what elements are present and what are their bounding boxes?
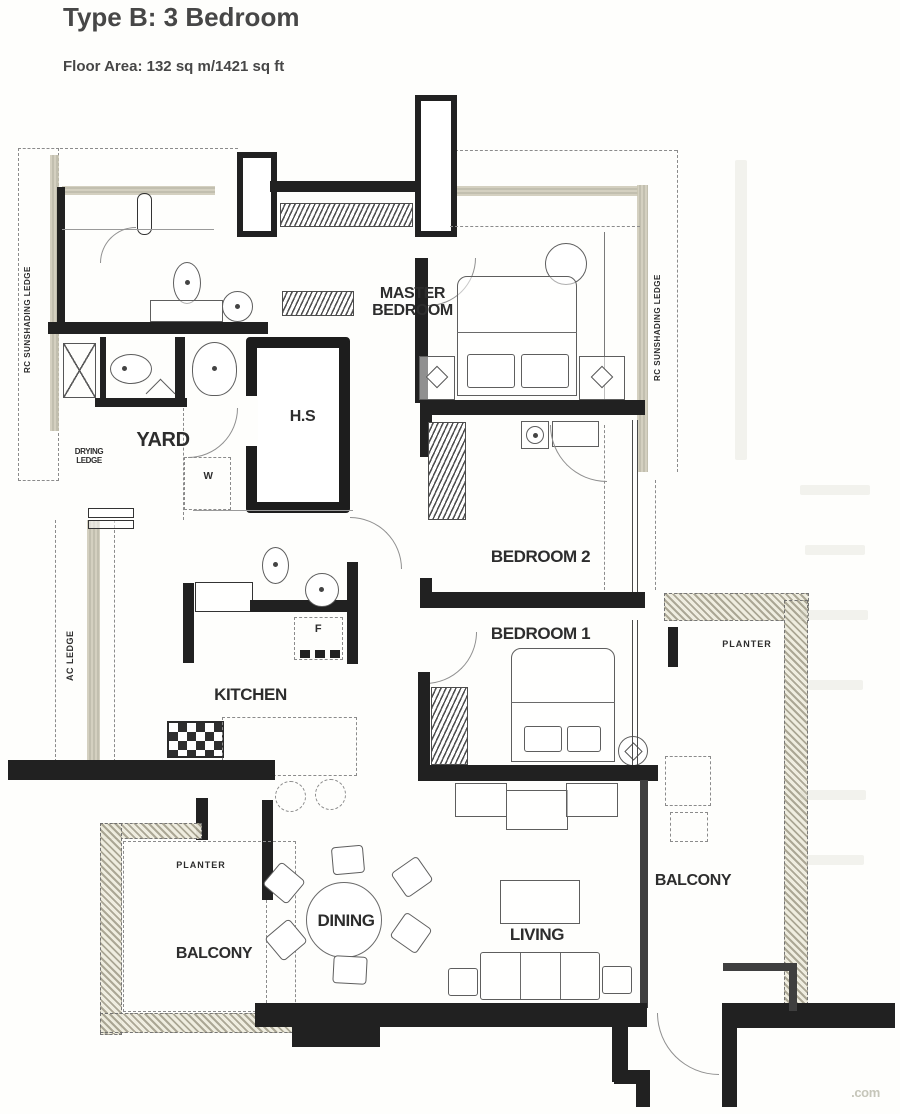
master-bed-line — [457, 332, 577, 333]
sofa-seam-2 — [560, 953, 561, 999]
dining-chair-s — [332, 955, 367, 985]
toilet-wc — [110, 354, 152, 384]
watermark-artifact — [800, 790, 866, 800]
basin-dot — [235, 304, 240, 309]
wardrobe-hatch-top — [280, 203, 413, 227]
dining-chair-n — [331, 845, 365, 876]
bedroom1-pillow-left — [524, 726, 562, 752]
shower-stall — [63, 343, 96, 398]
sunshading-band-master-top — [452, 186, 638, 196]
kitchen-sink-2 — [315, 779, 346, 810]
label-planter-right: PLANTER — [718, 640, 776, 650]
master-top-dashed — [450, 226, 640, 227]
wall-bath2-counter — [250, 600, 356, 612]
fridge-tick-3 — [330, 650, 340, 658]
side-table-left — [448, 968, 478, 996]
ac-ledge-dashed-right — [114, 520, 115, 772]
bath2-door-arc — [350, 517, 402, 569]
bedroom1-door-arc — [425, 632, 477, 684]
pedestal-basin-dot — [212, 366, 217, 371]
ac-ledge-dashed-left — [55, 520, 56, 772]
yard-door-arc — [188, 408, 238, 458]
master-bath-door-arc — [100, 227, 136, 263]
sofa-seam-1 — [520, 953, 521, 999]
tv-unit-left — [455, 783, 507, 817]
label-dining: DINING — [310, 912, 382, 930]
rc-ledge-right-boundary — [677, 150, 678, 472]
balcony-right-bracket — [668, 627, 678, 667]
dining-chair-se — [389, 912, 432, 955]
watermark-artifact — [808, 680, 863, 690]
entrance-door-arc — [657, 1013, 719, 1075]
wall-living-south — [255, 1003, 647, 1027]
watermark-text: .com — [838, 1086, 893, 1100]
label-balcony-left: BALCONY — [168, 945, 260, 962]
label-drying-ledge: DRYING LEDGE — [66, 448, 112, 465]
label-washer: W — [198, 472, 218, 483]
wall-b2b1 — [420, 592, 645, 608]
bedroom2-bay-dashed — [604, 425, 605, 590]
wall-wc-bottom — [95, 398, 187, 407]
wall-wc-right — [175, 337, 185, 401]
bedroom1-bed-line — [511, 702, 615, 703]
vanity-master-bath — [150, 300, 223, 322]
master-pillow-left — [467, 354, 515, 388]
wall-kitchen-south — [8, 760, 275, 780]
label-bedroom1: BEDROOM 1 — [483, 625, 598, 643]
label-rc-sunshading-left: RC SUNSHADING LEDGE — [24, 240, 33, 400]
balcony-rail-step-h — [723, 963, 797, 971]
structural-beam — [270, 181, 420, 192]
ac-ledge-band — [87, 520, 100, 770]
planter-right-side-band — [784, 600, 808, 1005]
label-master-bedroom: MASTER BEDROOM — [365, 285, 460, 320]
label-kitchen: KITCHEN — [208, 686, 293, 704]
fridge-tick-2 — [315, 650, 325, 658]
balcony-rail-step-v — [789, 963, 797, 1011]
structural-column-right — [415, 95, 457, 237]
wall-bedroom1-south-cap — [418, 752, 430, 766]
sunshading-band-right — [637, 185, 648, 472]
label-bedroom2: BEDROOM 2 — [483, 548, 598, 566]
wall-bath2-left — [183, 583, 194, 663]
kitchen-sink-1 — [275, 781, 306, 812]
plan-subtitle: Floor Area: 132 sq m/1421 sq ft — [63, 58, 284, 75]
window-bedroom1 — [632, 620, 638, 765]
watermark-artifact — [735, 160, 747, 460]
planter-left-side-band — [100, 823, 122, 1035]
fridge-tick-1 — [300, 650, 310, 658]
toilet-bath2-dot — [273, 562, 278, 567]
label-balcony-right: BALCONY — [647, 872, 739, 889]
wall-bottom-right — [722, 1003, 895, 1028]
watermark-artifact — [806, 855, 864, 865]
drying-shelf-1 — [88, 508, 134, 518]
sofa — [480, 952, 600, 1000]
entrance-wall-left-foot — [636, 1082, 650, 1107]
rc-ledge-right-top-dashed — [455, 150, 677, 151]
label-fridge: F — [310, 624, 326, 636]
wardrobe-hatch-dressing — [282, 291, 354, 316]
wardrobe-hatch-bedroom1 — [431, 687, 468, 765]
drying-shelf-2 — [88, 520, 134, 529]
bedroom1-pillow-right — [567, 726, 601, 752]
wall-wc-left — [100, 337, 106, 401]
right-ledge-dashed — [655, 480, 656, 590]
coffee-table — [500, 880, 580, 924]
bath2-top-line — [193, 510, 353, 511]
washer-box — [184, 457, 231, 510]
hs-door-opening — [244, 396, 258, 446]
balcony-chair — [665, 756, 711, 806]
wall-south-step — [292, 1027, 380, 1047]
watermark-artifact — [805, 545, 865, 555]
wall-living-balcony — [640, 780, 648, 1008]
label-yard: YARD — [132, 430, 194, 452]
dining-chair-ne — [390, 856, 433, 899]
window-bedroom2 — [632, 420, 638, 592]
balcony-table — [670, 812, 708, 842]
side-table-right — [602, 966, 632, 994]
label-hs: H.S — [280, 408, 325, 425]
label-planter-left: PLANTER — [172, 861, 230, 871]
bedroom2-door-arc — [550, 425, 607, 482]
basin-bath2-dot — [319, 587, 324, 592]
label-ac-ledge: AC LEDGE — [66, 618, 76, 693]
tv-unit-right — [566, 783, 618, 817]
wall-left-outer — [57, 187, 65, 333]
label-rc-sunshading-right: RC SUNSHADING LEDGE — [654, 258, 663, 398]
toilet-dot — [185, 280, 190, 285]
floor-plan: Type B: 3 Bedroom Floor Area: 132 sq m/1… — [0, 0, 900, 1114]
wall-b2b1-cap — [420, 578, 432, 592]
wall-bath-divider — [48, 322, 268, 334]
wall-bedroom1-south — [418, 765, 658, 781]
structural-column-left — [237, 152, 277, 237]
watermark-artifact — [800, 610, 868, 620]
label-living: LIVING — [503, 926, 571, 944]
top-boundary-dashed — [60, 148, 238, 149]
wardrobe-hatch-bedroom2 — [428, 422, 466, 520]
aircon-fan-dot — [533, 433, 538, 438]
tv-unit-mid — [506, 790, 568, 830]
stove-hob — [167, 721, 224, 758]
vanity-bath2 — [195, 582, 253, 612]
plan-title: Type B: 3 Bedroom — [63, 2, 299, 33]
toilet-wc-dot — [122, 366, 127, 371]
bath-top-line — [62, 229, 214, 230]
wall-bath2-right — [347, 562, 358, 664]
wall-master-south — [420, 400, 645, 415]
master-pillow-right — [521, 354, 569, 388]
watermark-artifact — [800, 485, 870, 495]
